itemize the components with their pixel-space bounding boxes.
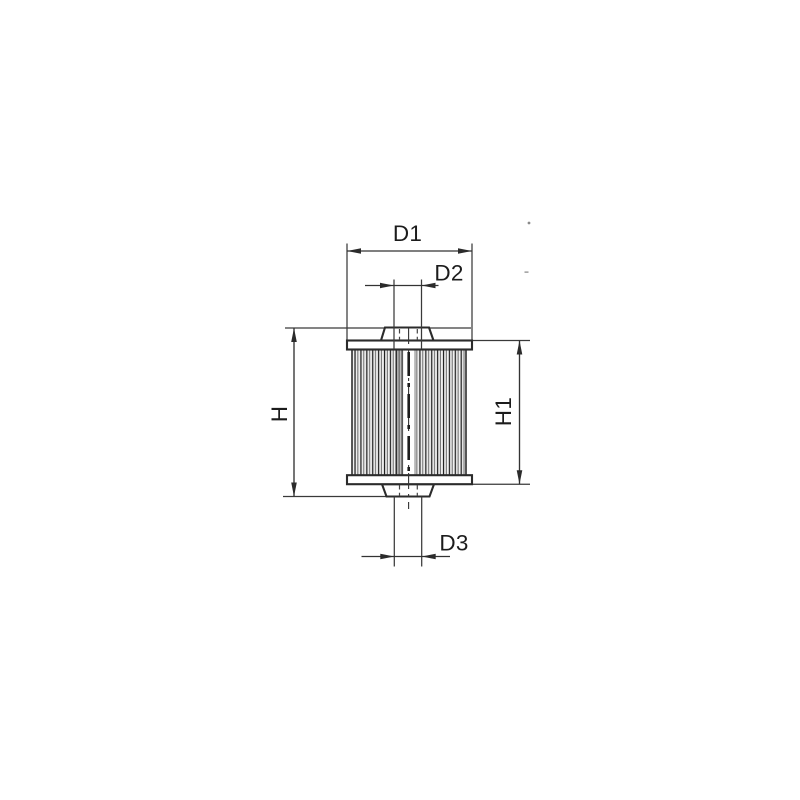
d2-arrow-left	[380, 283, 394, 288]
dimension-h1: H1	[491, 341, 522, 485]
h-arrow-top	[291, 328, 297, 342]
bottom-collar	[382, 484, 434, 496]
top-collar	[381, 328, 434, 341]
d3-arrow-left	[380, 554, 394, 559]
h-label: H	[267, 406, 292, 423]
d1-label: D1	[393, 221, 422, 246]
dimension-d2: D2	[365, 261, 464, 289]
d3-arrow-right	[422, 554, 436, 559]
d3-label: D3	[439, 531, 468, 556]
top-end-cap	[347, 341, 472, 350]
scan-speck-bottom	[525, 271, 529, 273]
dimension-d3: D3	[362, 531, 469, 560]
filter-element-technical-drawing: D1 D2 D3 H H1	[0, 0, 800, 800]
h1-arrow-bottom	[517, 470, 523, 484]
drawing-canvas: D1 D2 D3 H H1	[0, 0, 800, 800]
bottom-end-cap	[347, 475, 472, 484]
scan-speck-top	[528, 222, 531, 225]
dimension-h: H	[267, 328, 297, 497]
dimension-d1: D1	[347, 221, 472, 254]
d2-label: D2	[434, 261, 463, 286]
h-arrow-bottom	[291, 483, 297, 497]
d1-arrow-left	[347, 248, 361, 254]
center-tube-shading	[395, 350, 403, 476]
h1-arrow-top	[517, 341, 523, 355]
h1-label: H1	[491, 397, 516, 426]
d1-arrow-right	[458, 248, 472, 254]
